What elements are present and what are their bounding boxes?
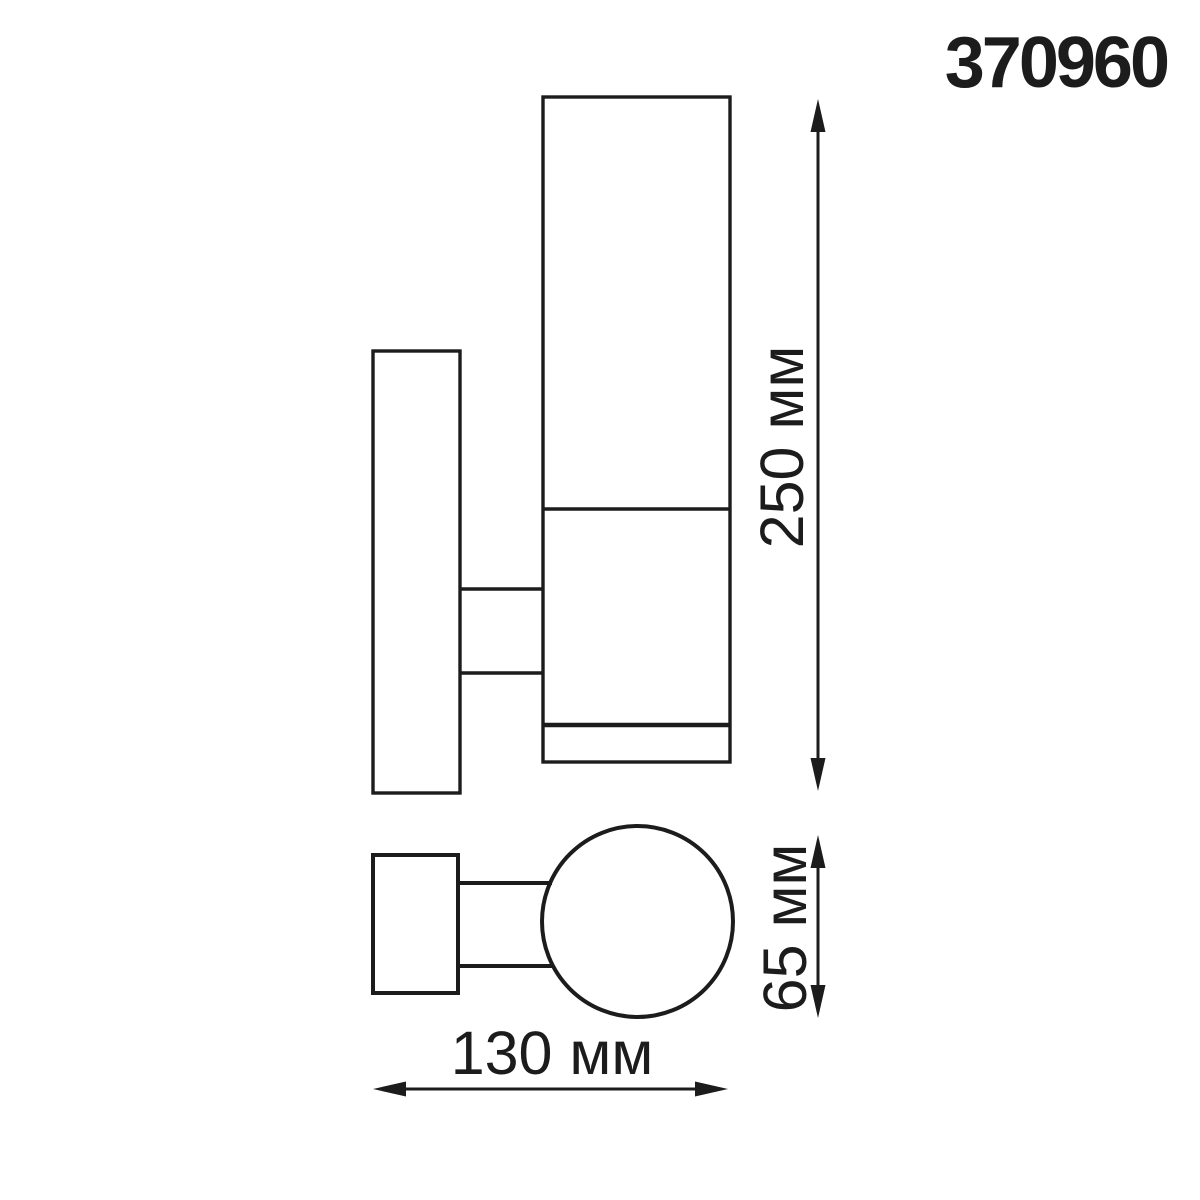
depth-dimension-label: 130 мм <box>451 1019 654 1087</box>
wall-sconce-dimension-drawing: 370960 <box>0 0 1200 1200</box>
depth-dimension-arrowhead-right-icon <box>695 1082 728 1097</box>
side-view-lamp-body <box>543 97 730 762</box>
height-dimension-label: 250 мм <box>748 346 816 549</box>
height-dimension-arrowhead-up-icon <box>811 99 826 132</box>
depth-dimension-arrowhead-left-icon <box>373 1082 406 1097</box>
diameter-dimension: 65 мм <box>751 835 826 1018</box>
side-view-wall-plate <box>373 351 460 793</box>
side-view <box>373 97 730 793</box>
height-dimension-arrowhead-down-icon <box>811 758 826 791</box>
top-view-lamp-body-circle <box>542 826 733 1017</box>
depth-dimension: 130 мм <box>373 1019 728 1097</box>
height-dimension: 250 мм <box>748 99 826 791</box>
product-code: 370960 <box>945 23 1168 103</box>
top-view-wall-plate <box>373 855 458 993</box>
top-view <box>373 826 733 1017</box>
technical-drawing-page: 370960 <box>0 0 1200 1200</box>
diameter-dimension-label: 65 мм <box>751 844 819 1013</box>
